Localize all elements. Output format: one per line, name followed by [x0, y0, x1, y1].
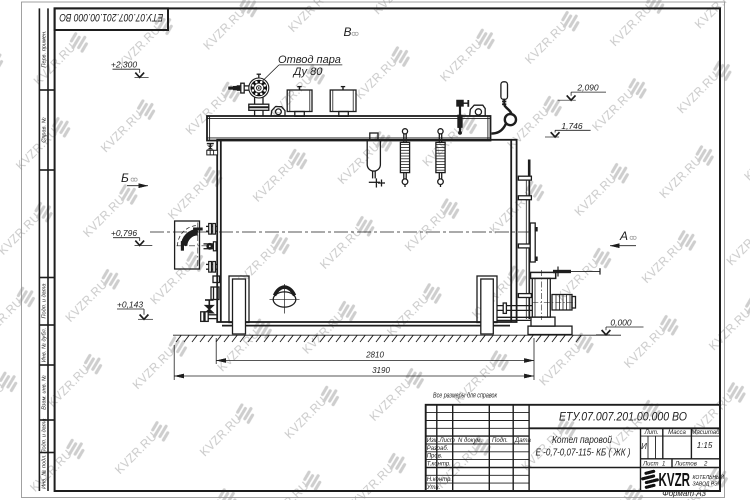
- svg-text:Подп. и дата: Подп. и дата: [42, 418, 48, 453]
- svg-text:Справ. №: Справ. №: [42, 117, 48, 142]
- svg-text:Взам. инв. №: Взам. инв. №: [42, 375, 48, 410]
- svg-text:KVZR: KVZR: [659, 469, 691, 490]
- svg-text:0,000: 0,000: [610, 318, 632, 328]
- svg-text:Изм.Лист: Изм.Лист: [427, 438, 455, 444]
- svg-text:В: В: [344, 25, 352, 39]
- svg-text:ЕТУ.07.007.201.00.000 ВО: ЕТУ.07.007.201.00.000 ВО: [559, 410, 687, 424]
- svg-text:И: И: [641, 442, 647, 451]
- svg-text:Лит.: Лит.: [644, 430, 659, 436]
- svg-text:А: А: [619, 229, 628, 243]
- svg-text:+0,796: +0,796: [111, 228, 138, 238]
- svg-text:Все размеры для справок: Все размеры для справок: [433, 392, 498, 400]
- svg-text:Инв. № подл.: Инв. № подл.: [42, 454, 48, 489]
- svg-text:2: 2: [703, 462, 708, 468]
- svg-text:Лист: Лист: [642, 462, 658, 468]
- svg-text:+0,143: +0,143: [117, 300, 144, 310]
- svg-text:Отвод пара: Отвод пара: [278, 54, 341, 66]
- svg-text:N докум.: N докум.: [458, 438, 482, 444]
- svg-text:+2,300: +2,300: [111, 60, 138, 70]
- svg-text:Дата: Дата: [514, 438, 531, 444]
- svg-text:ЕТУ.07.007.201.00.000 ВО: ЕТУ.07.007.201.00.000 ВО: [59, 11, 163, 23]
- svg-text:Перв. примен.: Перв. примен.: [42, 30, 48, 67]
- svg-text:2810: 2810: [365, 351, 384, 360]
- svg-text:Инв. № дубл.: Инв. № дубл.: [42, 328, 48, 362]
- svg-text:Котел паровой: Котел паровой: [552, 435, 612, 446]
- svg-text:ЗАВОД РЭП: ЗАВОД РЭП: [693, 481, 722, 487]
- svg-text:Б: Б: [121, 171, 129, 185]
- svg-text:2,090: 2,090: [576, 83, 599, 93]
- svg-text:Масса: Масса: [668, 430, 686, 436]
- svg-text:Листов: Листов: [674, 462, 697, 468]
- svg-text:Ду 80: Ду 80: [292, 66, 324, 78]
- svg-text:Е -0,7-0,07-115- КБ ( ЖК ): Е -0,7-0,07-115- КБ ( ЖК ): [536, 448, 631, 459]
- svg-text:Подп. и дата: Подп. и дата: [42, 283, 48, 318]
- svg-text:КОТЕЛЬНЫЙ: КОТЕЛЬНЫЙ: [693, 473, 725, 481]
- svg-text:1:15: 1:15: [697, 441, 713, 450]
- svg-text:Т.контр.: Т.контр.: [427, 462, 451, 468]
- svg-text:Утв.: Утв.: [426, 485, 441, 491]
- svg-text:Разраб.: Разраб.: [427, 446, 449, 452]
- svg-text:Н.контр.: Н.контр.: [427, 477, 452, 483]
- svg-text:1: 1: [662, 462, 665, 468]
- svg-text:Подп.: Подп.: [492, 438, 508, 444]
- svg-text:1,746: 1,746: [561, 121, 583, 131]
- svg-text:Пров.: Пров.: [427, 454, 443, 460]
- svg-text:Формат А3: Формат А3: [662, 489, 706, 498]
- svg-text:3190: 3190: [372, 366, 390, 375]
- svg-text:Масштаб: Масштаб: [691, 430, 720, 436]
